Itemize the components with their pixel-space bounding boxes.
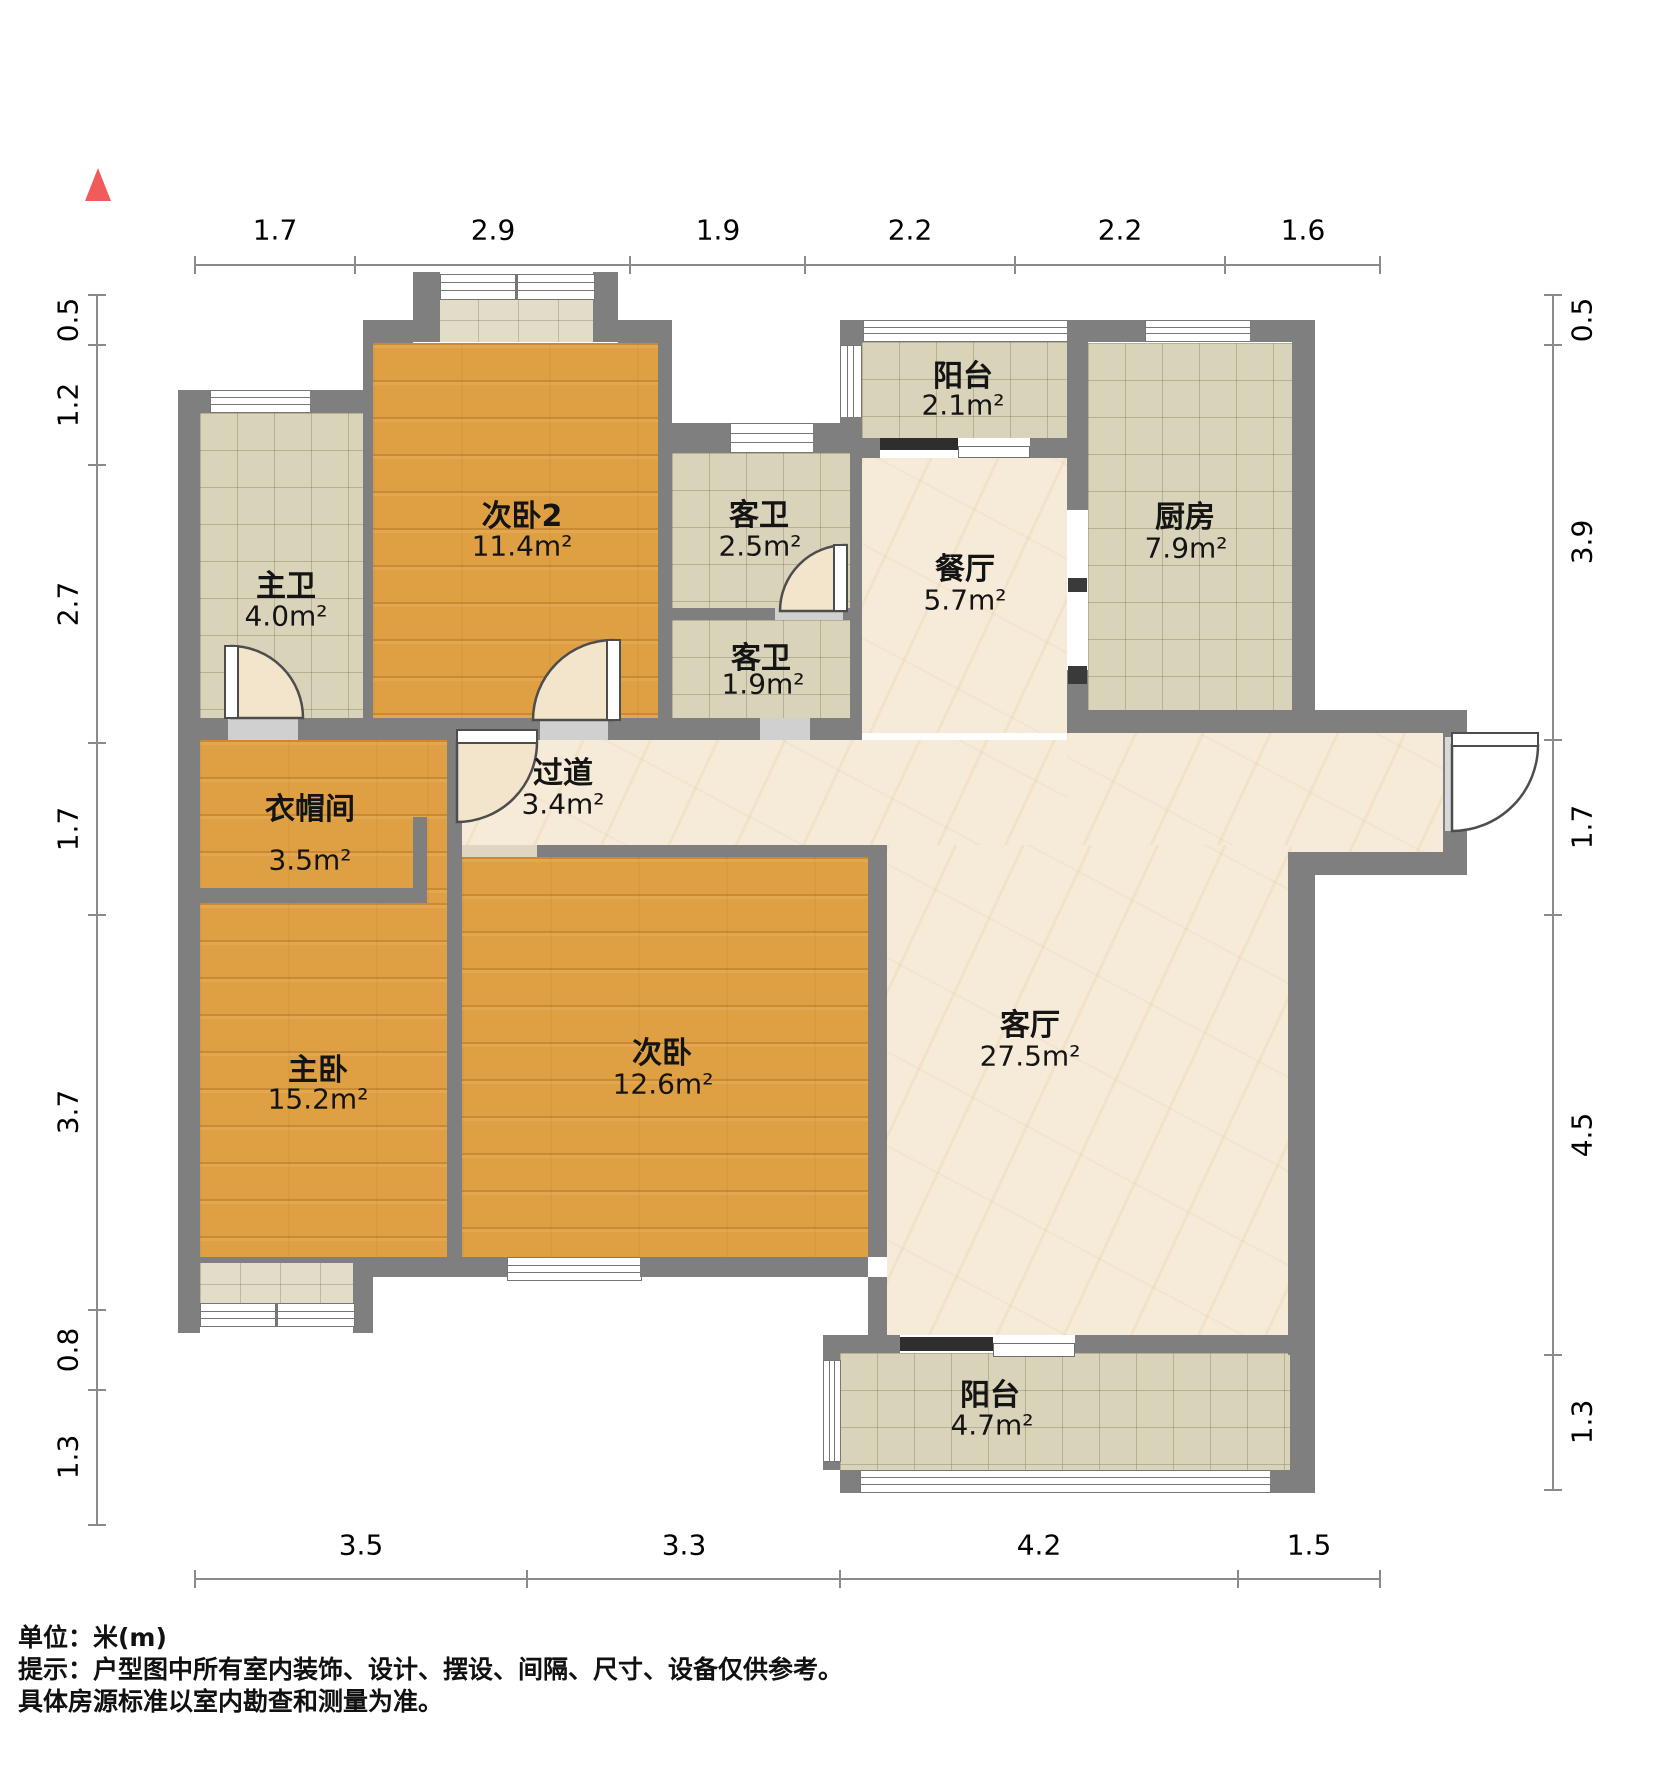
dim-tick [1224, 256, 1226, 274]
dim-top-5: 1.6 [1281, 214, 1326, 247]
door-leaf-master-bath [225, 646, 238, 718]
dim-left-2: 2.7 [52, 582, 85, 627]
note-unit: 单位：米(m) [18, 1618, 167, 1654]
dim-left-4: 3.7 [52, 1090, 85, 1135]
dim-tick [88, 1389, 106, 1391]
dimension-line-right [1552, 295, 1554, 1490]
dim-tick [526, 1570, 528, 1588]
dim-top-1: 2.9 [471, 214, 516, 247]
dim-tick [629, 256, 631, 274]
dim-bottom-3: 1.5 [1287, 1529, 1332, 1562]
door-swing-entry [1452, 745, 1538, 831]
dimension-line-left [96, 295, 98, 1525]
dim-left-0: 0.5 [52, 298, 85, 343]
dim-tick [88, 464, 106, 466]
dim-tick [1379, 256, 1381, 274]
room-area-closet: 3.5m² [268, 844, 351, 877]
room-area-master-bedroom: 15.2m² [268, 1083, 369, 1116]
dim-right-2: 1.7 [1566, 805, 1599, 850]
dim-top-3: 2.2 [888, 214, 933, 247]
dim-tick [194, 256, 196, 274]
room-label-bedroom: 次卧 [632, 1028, 692, 1072]
room-area-balcony-top: 2.1m² [921, 389, 1004, 422]
dim-right-4: 1.3 [1566, 1400, 1599, 1445]
door-leaf-entry [1452, 733, 1538, 746]
door-leaf-guest-bath [834, 545, 847, 611]
room-area-bedroom: 12.6m² [613, 1068, 714, 1101]
room-label-balcony-bottom: 阳台 [960, 1370, 1020, 1414]
door-swing-master-bath [231, 646, 303, 718]
dim-bottom-0: 3.5 [339, 1529, 384, 1562]
dim-left-6: 1.3 [52, 1435, 85, 1480]
door-swing-bedroom2 [533, 640, 613, 720]
dim-tick [1237, 1570, 1239, 1588]
room-area-living: 27.5m² [980, 1040, 1081, 1073]
room-area-balcony-bottom: 4.7m² [950, 1409, 1033, 1442]
room-area-guest-bath-1: 2.5m² [718, 530, 801, 563]
dim-tick [88, 1309, 106, 1311]
dim-tick [1544, 739, 1562, 741]
dim-top-0: 1.7 [253, 214, 298, 247]
room-label-master-bath: 主卫 [256, 561, 316, 605]
dim-tick [1544, 294, 1562, 296]
floor-plan-canvas: 次卧2 11.4m² 主卫 4.0m² 客卫 2.5m² 客卫 1.9m² 阳台… [0, 0, 1657, 1770]
dim-tick [88, 742, 106, 744]
door-leaf-bedroom2 [607, 640, 620, 720]
dim-tick [1379, 1570, 1381, 1588]
dim-tick [839, 1570, 841, 1588]
dim-left-5: 0.8 [52, 1328, 85, 1373]
room-area-dining: 5.7m² [923, 584, 1006, 617]
room-label-living: 客厅 [1000, 1000, 1060, 1044]
dim-tick [804, 256, 806, 274]
dim-tick [88, 914, 106, 916]
door-leaf-bedroom [457, 730, 537, 743]
room-label-kitchen: 厨房 [1155, 492, 1215, 536]
room-area-master-bath: 4.0m² [244, 600, 327, 633]
dim-tick [88, 1524, 106, 1526]
dim-tick [354, 256, 356, 274]
dim-tick [1544, 914, 1562, 916]
dim-left-3: 1.7 [52, 807, 85, 852]
dimension-line-bottom [195, 1578, 1380, 1580]
room-area-bedroom2: 11.4m² [472, 530, 573, 563]
dim-left-1: 1.2 [52, 383, 85, 428]
room-area-hallway: 3.4m² [521, 788, 604, 821]
dim-tick [1544, 1489, 1562, 1491]
dim-tick [194, 1570, 196, 1588]
room-area-kitchen: 7.9m² [1144, 532, 1227, 565]
dim-top-2: 1.9 [696, 214, 741, 247]
dimension-line-top [195, 264, 1380, 266]
room-label-hallway: 过道 [533, 748, 593, 792]
dim-bottom-2: 4.2 [1017, 1529, 1062, 1562]
dim-tick [1544, 344, 1562, 346]
dim-right-0: 0.5 [1566, 298, 1599, 343]
room-area-guest-bath-2: 1.9m² [721, 668, 804, 701]
room-label-closet: 衣帽间 [265, 784, 355, 828]
dim-bottom-1: 3.3 [662, 1529, 707, 1562]
note-tip-line1: 提示：户型图中所有室内装饰、设计、摆设、间隔、尺寸、设备仅供参考。 [18, 1650, 843, 1686]
room-label-dining: 餐厅 [935, 544, 995, 588]
note-tip-line2: 具体房源标准以室内勘查和测量为准。 [18, 1682, 443, 1718]
dim-tick [88, 344, 106, 346]
room-label-bedroom2: 次卧2 [482, 491, 563, 535]
dim-tick [88, 294, 106, 296]
dim-top-4: 2.2 [1098, 214, 1143, 247]
dim-tick [1014, 256, 1016, 274]
dim-tick [1544, 1354, 1562, 1356]
dim-right-3: 4.5 [1566, 1113, 1599, 1158]
room-label-guest-bath-1: 客卫 [729, 490, 789, 534]
dim-right-1: 3.9 [1566, 520, 1599, 565]
